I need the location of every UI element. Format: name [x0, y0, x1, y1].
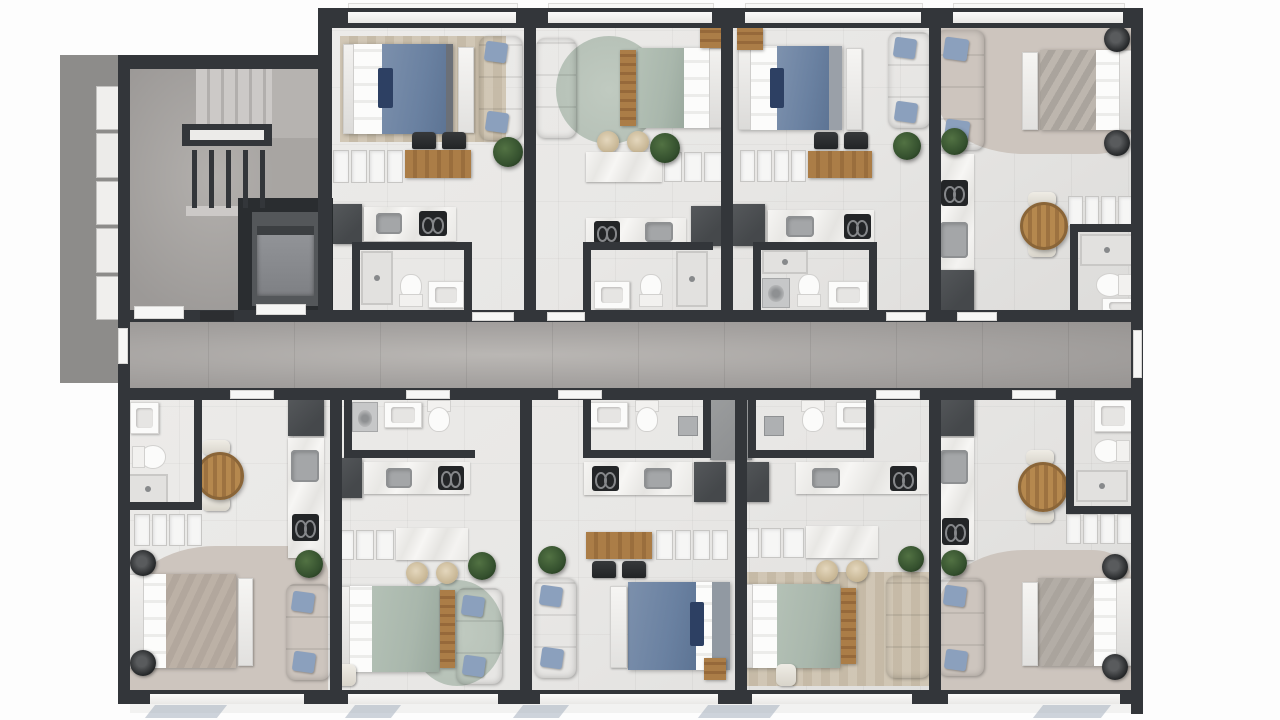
plant-bottom-1: [295, 550, 323, 578]
bath-wall: [194, 396, 202, 508]
party-wall-b1-b2: [330, 394, 342, 704]
bath-vanity-top-1: [428, 281, 464, 308]
shower-head: [764, 416, 784, 436]
side-table: [1104, 26, 1130, 52]
bed-bottom-3: [628, 582, 730, 670]
stool: [406, 562, 428, 584]
bath-wall: [583, 396, 591, 456]
desk-chair: [412, 132, 436, 149]
stair-landing: [272, 64, 322, 138]
unit-door-bottom-1: [230, 390, 274, 399]
cabinets-top-4: [1068, 196, 1132, 226]
kitchen-base-bottom-1: [288, 398, 324, 436]
throw-pillow: [462, 655, 487, 678]
closet-top-3: [733, 204, 765, 246]
toilet-bottom-1: [132, 444, 166, 468]
bed-bottom-2: [337, 586, 439, 672]
cabinets-bottom-5: [1066, 514, 1132, 544]
bed-bottom-5: [1038, 578, 1136, 666]
throw-pillow: [894, 101, 919, 124]
kitchen-sink-bottom-3: [644, 468, 672, 489]
shower-top-3: [762, 250, 808, 274]
kitchen-base-top-4: [936, 270, 974, 312]
dresser-top-3: [737, 28, 763, 50]
bath-wall: [583, 242, 591, 312]
desk-chair: [622, 561, 646, 578]
desk-top-3: [808, 151, 872, 178]
bath-wall: [583, 242, 713, 250]
unit-door-top-4: [957, 312, 997, 321]
party-wall-b2-b3: [520, 394, 532, 704]
side-table: [1102, 654, 1128, 680]
cooktop-bottom-5: [942, 518, 969, 545]
cabinets-bottom-3: [656, 530, 728, 560]
bath-wall: [869, 242, 877, 312]
kitchen-sink-top-3: [786, 216, 814, 237]
bed-pillow-navy-bottom-3: [690, 602, 704, 646]
bath-wall: [352, 242, 360, 312]
plant-bottom-4: [898, 546, 924, 572]
party-wall-t1-t2: [524, 28, 536, 322]
unit-door-bottom-2: [406, 390, 450, 399]
toilet-bottom-4: [800, 400, 824, 432]
bar-counter-bottom-4: [806, 526, 878, 558]
toilet-bottom-2: [426, 400, 450, 432]
window-south: [752, 694, 912, 704]
cooktop-top-4: [941, 180, 968, 206]
throw-pillow: [943, 36, 970, 61]
elevator-car: [257, 226, 314, 296]
shower-bottom-1: [128, 474, 168, 504]
bed-top-1: [343, 44, 453, 134]
desk-chair: [592, 561, 616, 578]
kitchen-cabinets-top-1: [333, 150, 403, 183]
shower-head: [678, 416, 698, 436]
toilet-bottom-5: [1094, 438, 1130, 462]
desk-top-1: [405, 150, 471, 178]
bath-wall: [703, 396, 711, 456]
bed-bench-top-4: [1022, 52, 1038, 130]
bar-counter-bottom-2: [396, 528, 468, 560]
balcony-strip-south: [130, 704, 1131, 713]
bath-wall: [866, 396, 874, 456]
plant-top-1: [493, 137, 523, 167]
window-north: [953, 12, 1123, 23]
throw-pillow: [291, 591, 316, 614]
stool: [597, 131, 619, 153]
stair-hall-door: [134, 306, 184, 319]
building-entrance-door: [118, 328, 128, 364]
stool: [436, 562, 458, 584]
kitchen-sink-bottom-1: [291, 450, 319, 482]
bath-vanity-bottom-5: [1094, 400, 1132, 432]
party-wall-b3-b4: [735, 394, 747, 704]
party-wall-t2-t3: [721, 28, 733, 322]
bath-wall: [753, 242, 761, 312]
closet-top-2: [691, 206, 721, 246]
kitchen-sink-top-2: [645, 222, 673, 242]
kitchen-sink-bottom-5: [940, 450, 968, 484]
desk-bottom-3: [586, 532, 652, 559]
side-table: [1102, 554, 1128, 580]
bath-wall: [344, 450, 475, 458]
unit-door-bottom-4: [876, 390, 920, 399]
kitchen-sink-bottom-4: [812, 468, 840, 488]
cooktop-bottom-3: [592, 466, 619, 491]
dining-table-top-4: [1020, 202, 1068, 250]
closet-bottom-3: [694, 462, 726, 502]
bath-wall: [126, 502, 202, 510]
bath-vanity-bottom-3: [590, 402, 628, 428]
throw-pillow: [539, 585, 564, 608]
entry-mat: [200, 311, 234, 321]
cooktop-top-2: [594, 221, 620, 244]
toilet-top-2: [638, 274, 662, 307]
stool: [816, 560, 838, 582]
party-wall-b4-b5: [929, 394, 941, 704]
toilet-top-4: [1096, 272, 1132, 296]
window-north: [348, 12, 516, 23]
bed-pillow-navy-top-3: [770, 68, 784, 108]
stair-balusters: [192, 150, 270, 208]
sofa-bottom-4: [886, 576, 930, 678]
stool: [627, 131, 649, 153]
window-south: [348, 694, 498, 704]
throw-pillow: [944, 649, 969, 672]
toilet-top-1: [398, 274, 422, 307]
balcony-glass-shadow: [513, 705, 569, 718]
kitchen-sink-top-4: [940, 222, 968, 258]
cooktop-bottom-2: [438, 466, 464, 490]
throw-pillow: [485, 111, 510, 134]
dining-table-bottom-5: [1018, 462, 1068, 512]
window-south: [540, 694, 718, 704]
bed-bench-top-2: [620, 50, 636, 126]
bath-vanity-top-2: [594, 281, 630, 309]
exterior-wall-west-upper: [118, 55, 130, 315]
cooktop-top-3: [844, 214, 871, 239]
window-south: [150, 694, 304, 704]
cabinets-bottom-1: [134, 514, 202, 546]
throw-pillow: [893, 37, 918, 60]
dining-table-bottom-1: [196, 452, 244, 500]
shower-bottom-5: [1076, 470, 1128, 502]
bath-wall: [352, 242, 472, 250]
side-table: [130, 650, 156, 676]
bed-bottom-4: [740, 584, 840, 668]
throw-pillow: [943, 585, 968, 608]
shower-top-4: [1080, 234, 1134, 266]
corridor-end-door: [1133, 330, 1142, 378]
bath-vanity-bottom-2: [384, 402, 422, 428]
bath-wall: [344, 396, 352, 456]
elevator-threshold: [256, 304, 306, 315]
unit-door-top-3: [886, 312, 926, 321]
kitchen-sink-top-1: [376, 213, 402, 234]
plant-top-3: [893, 132, 921, 160]
desk-chair: [442, 132, 466, 149]
bath-wall: [753, 242, 877, 250]
floor-plan: [0, 0, 1280, 720]
party-wall-t3-t4: [929, 28, 941, 322]
bath-wall: [748, 450, 874, 458]
stair-hall-wall-north: [118, 55, 330, 69]
kitchen-cabinets-top-3: [740, 150, 806, 182]
throw-pillow: [540, 647, 565, 670]
bed-top-2: [638, 48, 722, 128]
corridor-floor: [122, 320, 1135, 390]
throw-pillow: [292, 651, 317, 674]
toilet-top-3: [796, 274, 820, 307]
balcony-glass-shadow: [345, 705, 401, 718]
window-north: [548, 12, 712, 23]
desk-chair: [814, 132, 838, 149]
elevator-door: [257, 226, 314, 235]
throw-pillow: [461, 595, 486, 618]
unit-door-top-2: [547, 312, 585, 321]
shower-top-2: [676, 251, 708, 307]
balcony-glass-shadow: [145, 705, 227, 718]
bed-top-3: [738, 46, 842, 130]
closet-top-1: [333, 204, 362, 244]
window-north: [745, 12, 921, 23]
washer-top-3: [762, 278, 790, 308]
kitchen-base-bottom-5: [936, 396, 974, 436]
bed-bench-bottom-2: [440, 590, 455, 668]
entry-side-table: [776, 664, 796, 686]
cooktop-bottom-4: [890, 466, 917, 491]
balcony-glass-shadow: [698, 705, 780, 718]
bed-bench-bottom-1: [238, 578, 253, 666]
bed-bench-bottom-4: [841, 588, 856, 664]
bath-wall: [748, 396, 756, 456]
throw-pillow: [484, 41, 509, 64]
washer-bottom-2: [352, 402, 378, 432]
side-table: [130, 550, 156, 576]
bed-top-4: [1040, 50, 1136, 130]
bed-bench-bottom-5: [1022, 582, 1038, 666]
cooktop-top-1: [419, 211, 447, 236]
plant-bottom-5: [941, 550, 967, 576]
bath-vanity-bottom-1: [130, 402, 159, 434]
plant-bottom-2: [468, 552, 496, 580]
window-south: [948, 694, 1120, 704]
bar-counter-top-2: [586, 152, 662, 182]
balcony-glass-shadow: [1033, 705, 1111, 718]
bath-wall: [1066, 396, 1074, 514]
side-table: [1104, 130, 1130, 156]
bed-bench-top-3: [846, 48, 862, 130]
stool: [846, 560, 868, 582]
bath-vanity-top-3: [828, 281, 868, 308]
bath-wall: [1070, 224, 1078, 312]
unit-door-top-1: [472, 312, 514, 321]
stairwell-party-wall: [318, 8, 332, 322]
plant-top-2: [650, 133, 680, 163]
plant-top-4: [941, 128, 968, 155]
cabinets-bottom-4: [738, 528, 804, 558]
kitchen-sink-bottom-2: [386, 468, 412, 488]
bath-wall: [583, 450, 711, 458]
bed-bench-top-1: [458, 47, 474, 133]
unit-door-bottom-3: [558, 390, 602, 399]
shower-top-1: [361, 251, 393, 305]
sofa-top-2: [536, 38, 576, 138]
toilet-bottom-3: [634, 400, 658, 432]
cabinets-bottom-2: [336, 530, 394, 560]
desk-chair: [844, 132, 868, 149]
exterior-wall-west-lower: [118, 310, 130, 704]
plant-bottom-3: [538, 546, 566, 574]
bed-pillow-navy-top-1: [378, 68, 393, 108]
entry-table-bottom-3: [704, 658, 726, 680]
unit-door-bottom-5: [1012, 390, 1056, 399]
bed-bench-bottom-3: [610, 586, 627, 668]
stair-guard-rail-cap: [190, 130, 264, 140]
cooktop-bottom-1: [292, 514, 319, 541]
bath-wall: [464, 242, 472, 312]
